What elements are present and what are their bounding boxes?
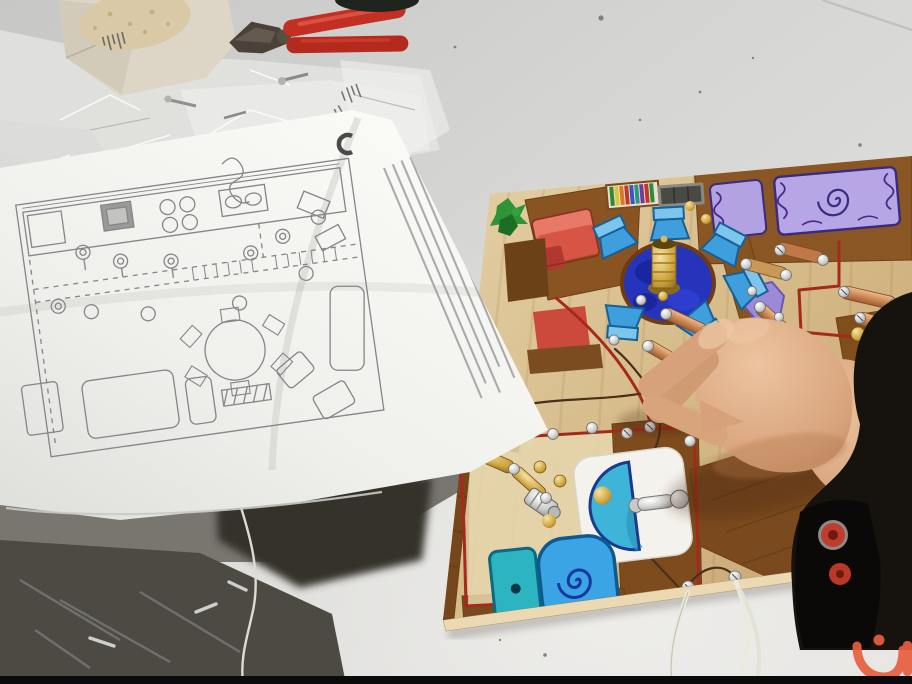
lamp-holder bbox=[648, 236, 680, 295]
bookshelf bbox=[605, 180, 661, 211]
watermark-bar bbox=[903, 641, 912, 676]
brass-nut bbox=[542, 514, 556, 528]
side-table bbox=[504, 238, 549, 302]
photo-workbench-scene bbox=[0, 0, 912, 684]
watermark-dot bbox=[874, 635, 885, 646]
scene-canvas bbox=[0, 0, 912, 684]
photo-bottom-border bbox=[0, 676, 912, 684]
tv-drawing bbox=[657, 182, 704, 207]
red-armchair bbox=[533, 306, 590, 352]
bed-blanket bbox=[774, 167, 901, 235]
